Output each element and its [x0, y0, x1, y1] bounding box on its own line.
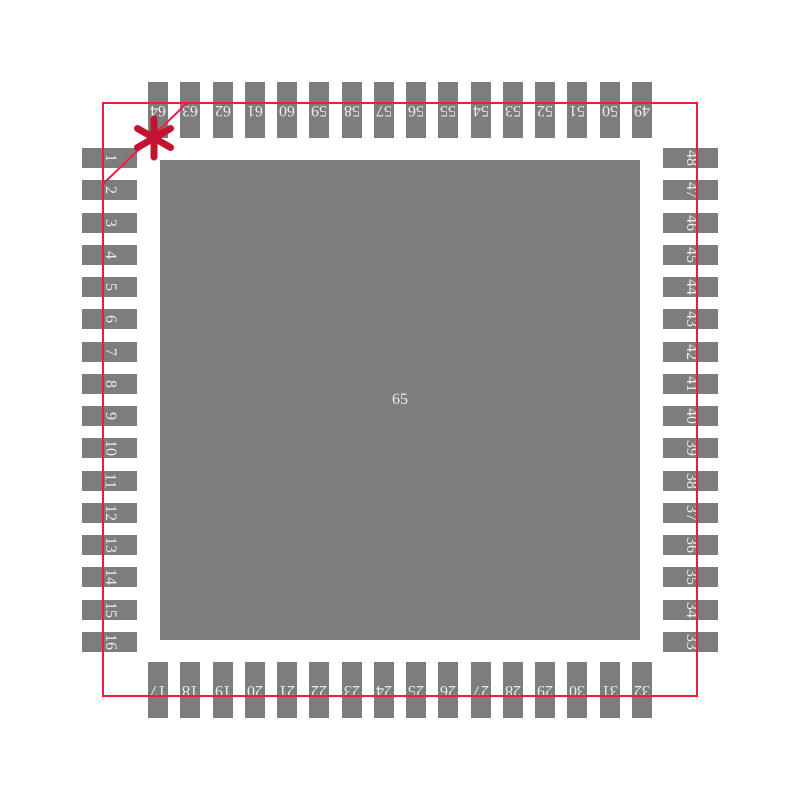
pad-number: 43	[683, 311, 699, 327]
pad-number: 12	[102, 505, 118, 521]
pad-number: 55	[440, 102, 456, 118]
pad-number: 2	[102, 186, 118, 194]
pad-48: 48	[663, 148, 718, 168]
pad-number: 27	[473, 682, 489, 698]
pad-5: 5	[82, 277, 137, 297]
pad-4: 4	[82, 245, 137, 265]
pad-number: 10	[102, 440, 118, 456]
pad-number: 13	[102, 537, 118, 553]
pad-27: 27	[471, 662, 491, 718]
pad-57: 57	[374, 82, 394, 138]
pad-30: 30	[567, 662, 587, 718]
pad-55: 55	[438, 82, 458, 138]
pad-62: 62	[213, 82, 233, 138]
pad-42: 42	[663, 342, 718, 362]
pad-22: 22	[309, 662, 329, 718]
pad-number: 44	[683, 279, 699, 295]
pad-number: 8	[102, 380, 118, 388]
pad-43: 43	[663, 309, 718, 329]
pad-15: 15	[82, 600, 137, 620]
pad-11: 11	[82, 471, 137, 491]
pad-31: 31	[600, 662, 620, 718]
pad-37: 37	[663, 503, 718, 523]
pad-56: 56	[406, 82, 426, 138]
pad-number: 26	[440, 682, 456, 698]
pad-number: 3	[102, 219, 118, 227]
pad-number: 63	[182, 102, 198, 118]
pad-47: 47	[663, 180, 718, 200]
pad-33: 33	[663, 632, 718, 652]
pad-number: 58	[344, 102, 360, 118]
pad-number: 14	[102, 569, 118, 585]
pad-row-bottom: 17181920212223242526272829303132	[148, 662, 652, 718]
pad-44: 44	[663, 277, 718, 297]
pad-2: 2	[82, 180, 137, 200]
pad-64: 64	[148, 82, 168, 138]
pad-number: 52	[537, 102, 553, 118]
pad-number: 16	[102, 634, 118, 650]
pad-34: 34	[663, 600, 718, 620]
pad-6: 6	[82, 309, 137, 329]
pad-number: 61	[247, 102, 263, 118]
pad-29: 29	[535, 662, 555, 718]
pad-number: 42	[683, 344, 699, 360]
pad-number: 54	[473, 102, 489, 118]
pad-49: 49	[632, 82, 652, 138]
pad-26: 26	[438, 662, 458, 718]
pad-number: 50	[602, 102, 618, 118]
pad-number: 38	[683, 473, 699, 489]
pad-number: 21	[279, 682, 295, 698]
pad-61: 61	[245, 82, 265, 138]
pad-number: 57	[376, 102, 392, 118]
pad-9: 9	[82, 406, 137, 426]
pad-number: 62	[215, 102, 231, 118]
pad-number: 46	[683, 215, 699, 231]
pad-63: 63	[180, 82, 200, 138]
pad-number: 19	[215, 682, 231, 698]
pad-19: 19	[213, 662, 233, 718]
pad-3: 3	[82, 213, 137, 233]
pad-number: 20	[247, 682, 263, 698]
pad-number: 29	[537, 682, 553, 698]
pad-number: 59	[311, 102, 327, 118]
pad-12: 12	[82, 503, 137, 523]
pad-number: 32	[634, 682, 650, 698]
pad-28: 28	[503, 662, 523, 718]
pad-number: 5	[102, 283, 118, 291]
pad-number: 22	[311, 682, 327, 698]
pad-50: 50	[600, 82, 620, 138]
pad-number: 6	[102, 315, 118, 323]
pad-number: 11	[102, 473, 118, 488]
pad-20: 20	[245, 662, 265, 718]
pad-number: 45	[683, 247, 699, 263]
pad-number: 31	[602, 682, 618, 698]
pad-58: 58	[342, 82, 362, 138]
center-pad-number: 65	[392, 392, 408, 408]
pad-column-left: 12345678910111213141516	[82, 148, 137, 652]
pad-number: 40	[683, 408, 699, 424]
pad-number: 30	[569, 682, 585, 698]
pad-number: 23	[344, 682, 360, 698]
pad-46: 46	[663, 213, 718, 233]
pad-number: 24	[376, 682, 392, 698]
pad-16: 16	[82, 632, 137, 652]
pad-41: 41	[663, 374, 718, 394]
pad-column-right: 48474645444342414039383736353433	[663, 148, 718, 652]
pad-number: 34	[683, 602, 699, 618]
pad-number: 48	[683, 150, 699, 166]
pad-51: 51	[567, 82, 587, 138]
pad-number: 17	[150, 682, 166, 698]
pad-14: 14	[82, 567, 137, 587]
pad-54: 54	[471, 82, 491, 138]
pad-number: 49	[634, 102, 650, 118]
pad-number: 35	[683, 569, 699, 585]
pad-number: 18	[182, 682, 198, 698]
pad-17: 17	[148, 662, 168, 718]
pad-25: 25	[406, 662, 426, 718]
pad-number: 4	[102, 251, 118, 259]
pad-number: 36	[683, 537, 699, 553]
pad-number: 60	[279, 102, 295, 118]
pad-53: 53	[503, 82, 523, 138]
pad-number: 41	[683, 376, 699, 392]
pad-10: 10	[82, 438, 137, 458]
pad-number: 7	[102, 348, 118, 356]
pad-1: 1	[82, 148, 137, 168]
pad-number: 51	[569, 102, 585, 118]
pad-45: 45	[663, 245, 718, 265]
center-pad: 65	[160, 160, 640, 640]
pad-7: 7	[82, 342, 137, 362]
pad-number: 37	[683, 505, 699, 521]
pad-23: 23	[342, 662, 362, 718]
pad-32: 32	[632, 662, 652, 718]
pad-36: 36	[663, 535, 718, 555]
pad-35: 35	[663, 567, 718, 587]
pad-18: 18	[180, 662, 200, 718]
pad-59: 59	[309, 82, 329, 138]
pad-number: 1	[102, 154, 118, 162]
pad-number: 25	[408, 682, 424, 698]
footprint-diagram: 65 64636261605958575655545352515049 1718…	[0, 0, 800, 799]
pad-number: 15	[102, 602, 118, 618]
pad-8: 8	[82, 374, 137, 394]
pad-24: 24	[374, 662, 394, 718]
pad-number: 47	[683, 182, 699, 198]
pad-13: 13	[82, 535, 137, 555]
pad-52: 52	[535, 82, 555, 138]
pad-row-top: 64636261605958575655545352515049	[148, 82, 652, 138]
pad-40: 40	[663, 406, 718, 426]
pad-number: 64	[150, 102, 166, 118]
pad-number: 39	[683, 440, 699, 456]
pad-38: 38	[663, 471, 718, 491]
pad-number: 9	[102, 412, 118, 420]
pad-number: 53	[505, 102, 521, 118]
pad-number: 28	[505, 682, 521, 698]
pad-21: 21	[277, 662, 297, 718]
pad-number: 33	[683, 634, 699, 650]
pad-number: 56	[408, 102, 424, 118]
pad-39: 39	[663, 438, 718, 458]
pad-60: 60	[277, 82, 297, 138]
